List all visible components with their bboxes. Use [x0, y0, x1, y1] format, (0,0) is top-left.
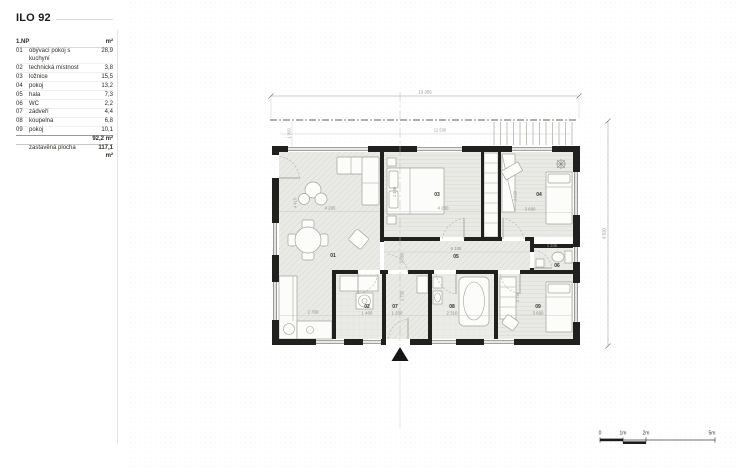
dim-room9-width: 3 660: [533, 311, 545, 316]
dim-bath-width: 2 310: [447, 311, 459, 316]
closet-03: [484, 153, 498, 237]
dim-entry-width: 1 200: [392, 311, 404, 316]
room-label-08: 08: [449, 304, 455, 310]
scale-5m: 5m: [709, 431, 716, 437]
room-label-06: 06: [554, 263, 560, 269]
window-left-kitchen: [274, 282, 276, 320]
room-label-03: 03: [434, 192, 440, 198]
room-label-07: 07: [392, 304, 398, 310]
dim-living-width: 4 265: [325, 206, 337, 211]
room-label-02: 02: [364, 304, 370, 310]
window-right-room4: [575, 172, 577, 215]
floor-plan-svg: 13 355 12 530 1 000 9 520 4 265 4 410 2 …: [0, 0, 737, 468]
dim-tech-width: 1 400: [362, 311, 374, 316]
bathtub: [459, 277, 489, 326]
scale-bar: 0 1m 2m 5m: [599, 431, 716, 445]
wardrobe-04: [502, 154, 515, 212]
scale-2m: 2m: [643, 431, 650, 437]
dim-hall-width: 6 105: [451, 246, 463, 251]
dim-room9-height: 2 750: [515, 291, 520, 302]
dim-bed3-depth: 1 480: [392, 186, 397, 197]
room-label-05: 05: [453, 254, 459, 260]
plan-area: 13 355 12 530 1 000 9 520 4 265 4 410 2 …: [0, 0, 737, 468]
dim-overall-height: 9 520: [602, 227, 607, 239]
dim-bed3-width: 4 280: [438, 206, 450, 211]
entry-cabinet: [417, 276, 428, 293]
north-entry-arrow: [392, 347, 409, 361]
dim-room4-width: 3 660: [525, 207, 537, 212]
wardrobe-09: [500, 277, 516, 319]
window-bottom-bath: [432, 341, 456, 343]
window-top-living: [288, 148, 368, 150]
window-top-bedroom3: [417, 148, 462, 150]
plant-04: [556, 159, 566, 169]
room-label-01: 01: [330, 253, 336, 259]
window-right-room9: [575, 283, 577, 322]
window-right-wc: [575, 247, 577, 262]
scale-1m: 1m: [620, 431, 627, 437]
floorplan-sheet: ILO 92 1.NP m² 01 obývací pokoj s kuchyn…: [0, 0, 737, 468]
window-bottom-tech: [363, 341, 381, 343]
bed-09: [546, 282, 572, 332]
dim-wc-width: 1 345: [547, 243, 558, 248]
dim-living-height: 4 410: [293, 197, 298, 208]
scale-0: 0: [599, 431, 602, 437]
window-left-dining: [274, 223, 276, 255]
dim-kitchen-width: 2 700: [308, 310, 320, 315]
bed-04: [546, 172, 572, 224]
window-bottom-kitchen: [316, 341, 344, 343]
pergola-slats: [494, 122, 572, 145]
dim-inner-width: 12 530: [434, 128, 447, 133]
room-label-09: 09: [535, 304, 541, 310]
window-bottom-room9: [484, 341, 514, 343]
room-label-04: 04: [536, 192, 542, 198]
dim-overall-width: 13 355: [418, 90, 432, 95]
dim-roof-overhang: 1 000: [287, 128, 292, 139]
window-top-room4: [512, 148, 552, 150]
dim-room4-height: 3 620: [513, 190, 518, 201]
